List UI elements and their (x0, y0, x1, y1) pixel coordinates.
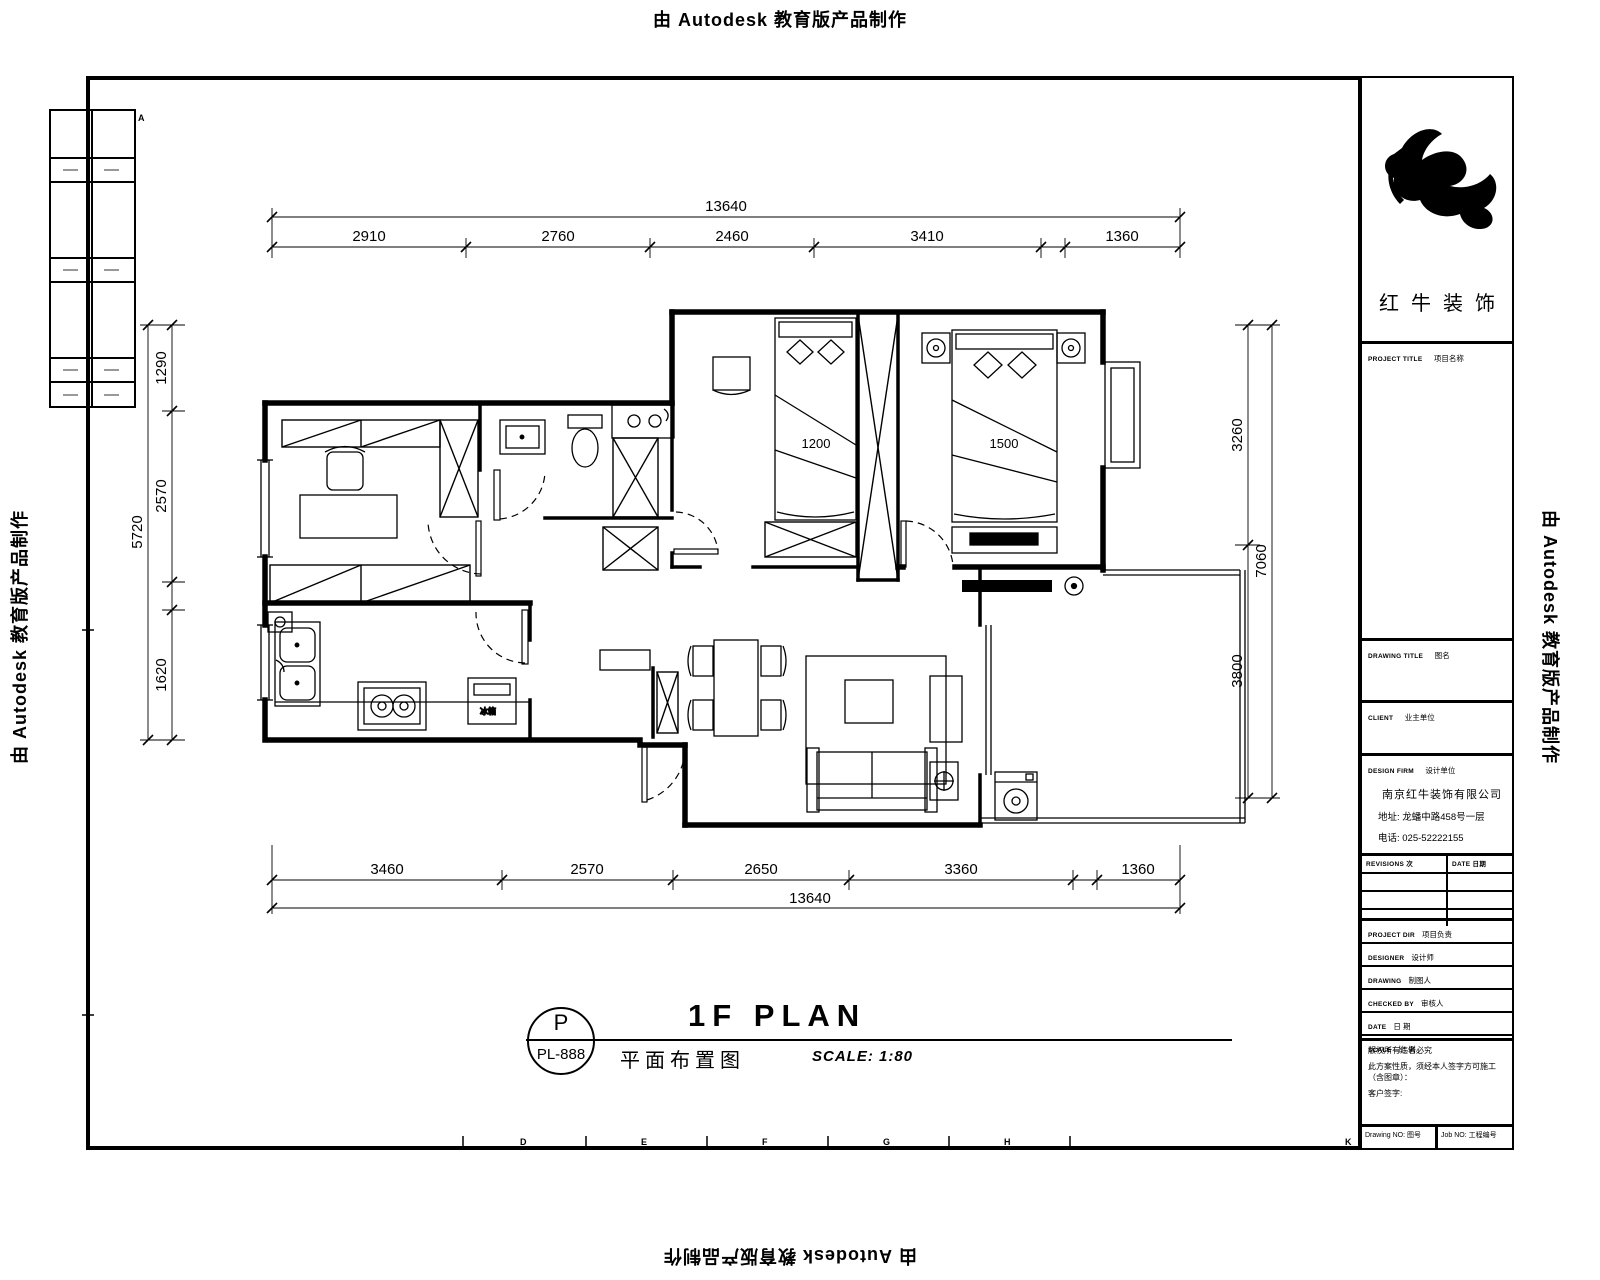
bedroom2-tv-cabinet (952, 527, 1057, 553)
bed2-size-label: 1500 (990, 436, 1019, 451)
bedroom1-side-table (713, 357, 750, 395)
plan-scale: SCALE: 1:80 (812, 1048, 913, 1065)
fridge (468, 678, 516, 724)
client-signature-label: 客户签字: (1368, 1089, 1506, 1099)
brand-name: 红牛装饰 (1362, 287, 1512, 316)
kitchen-door-leaf (522, 610, 528, 664)
coffee-table (845, 680, 893, 723)
notes-section: 版权所有违者必究 此方案性质，须经本人签字方可施工（含图章）： 客户签字: (1362, 1038, 1512, 1124)
project-title-section: PROJECT TITLE 项目名称 (1362, 341, 1512, 638)
svg-text:2460: 2460 (715, 228, 748, 245)
svg-text:F: F (762, 1137, 768, 1147)
svg-text:G: G (883, 1137, 890, 1147)
nightstand-left (922, 333, 950, 363)
svg-text:E: E (641, 1137, 647, 1147)
design-firm-section: DESIGN FIRM 设计单位 南京红牛装饰有限公司 地址: 龙蟠中路458号… (1362, 753, 1512, 853)
bed1-size-label: 1200 (802, 436, 831, 451)
drawing-no: Drawing NO: 图号 (1362, 1127, 1438, 1148)
client-section: CLIENT 业主单位 (1362, 700, 1512, 753)
dining-table (714, 640, 758, 736)
svg-text:13640: 13640 (789, 890, 831, 907)
firm-name: 南京红牛装饰有限公司 (1382, 786, 1506, 802)
study-wardrobe (440, 420, 478, 517)
floor-lamp (930, 762, 958, 800)
study-top-closet (282, 420, 440, 447)
svg-text:3410: 3410 (910, 228, 943, 245)
logo-section: 红牛装饰 (1362, 78, 1512, 341)
bay-window (1105, 362, 1140, 468)
bubble-letter: P (529, 1009, 593, 1037)
checked-by-row: CHECKED BY审核人 (1362, 990, 1512, 1013)
svg-text:2570: 2570 (570, 861, 603, 878)
plan-subtitle: 平面布置图 (620, 1044, 745, 1073)
interior-walls (480, 315, 980, 825)
svg-text:5720: 5720 (129, 515, 146, 548)
project-dir-row: PROJECT DIR项目负责 (1362, 921, 1512, 944)
nightstand-right (1057, 333, 1085, 363)
svg-text:13640: 13640 (705, 198, 747, 215)
closets (270, 315, 898, 733)
bathroom-door-leaf (494, 470, 500, 520)
svg-text:3460: 3460 (370, 861, 403, 878)
svg-text:3360: 3360 (944, 861, 977, 878)
svg-text:D: D (520, 1137, 527, 1147)
bed-1200 (775, 318, 856, 520)
fold-strip-table (50, 110, 135, 407)
svg-text:1360: 1360 (1121, 861, 1154, 878)
balcony-glazing (980, 570, 1245, 823)
plan-title-rule (526, 1039, 1232, 1041)
bubble-code: PL-888 (529, 1045, 593, 1065)
number-section: Drawing NO: 图号 Job NO: 工程编号 (1362, 1124, 1512, 1148)
sheet-border (82, 78, 1512, 1148)
svg-text:2910: 2910 (352, 228, 385, 245)
svg-text:2570: 2570 (153, 479, 170, 512)
job-no: Job NO: 工程编号 (1438, 1127, 1512, 1148)
revisions-section: REVISIONS 次 DATE 日期 (1362, 853, 1512, 918)
entry-door-leaf (642, 747, 647, 802)
svg-text:7060: 7060 (1253, 544, 1270, 577)
svg-text:K: K (1345, 1137, 1352, 1147)
firm-address: 地址: 龙蟠中路458号一层 (1378, 809, 1506, 823)
study-south-closet (270, 565, 470, 603)
bed-1500 (952, 330, 1057, 522)
hall-cabinet (603, 527, 658, 570)
shoe-cabinet (657, 672, 678, 733)
svg-text:H: H (1004, 1137, 1011, 1147)
svg-text:1360: 1360 (1105, 228, 1138, 245)
dimension-labels: 13640 2910 2760 2460 3410 1360 3460 2570… (129, 198, 1270, 907)
svg-text:3260: 3260 (1229, 418, 1246, 451)
study-door-leaf (476, 521, 481, 576)
washing-machine (995, 772, 1037, 820)
shower-unit (613, 438, 658, 517)
kitchen-sink (275, 622, 320, 706)
laundry-counter (612, 405, 674, 438)
study-desk (300, 495, 397, 538)
date-row: DATE日 期 (1362, 1013, 1512, 1036)
bathroom-vanity (500, 420, 545, 454)
signature-rows: PROJECT DIR项目负责 DESIGNER设计师 DRAWING制图人 C… (1362, 918, 1512, 1038)
drawing-row: DRAWING制图人 (1362, 967, 1512, 990)
drawing-sheet: 由 Autodesk 教育版产品制作 由 Autodesk 教育版产品制作 由 … (0, 0, 1600, 1280)
sofa (807, 748, 937, 812)
fridge-label: 冰箱 (480, 706, 496, 716)
plan-reference-bubble: P PL-888 (527, 1007, 595, 1075)
svg-text:1620: 1620 (153, 658, 170, 691)
plan-title: 1F PLAN (688, 998, 866, 1034)
title-block: 红牛装饰 PROJECT TITLE 项目名称 DRAWING TITLE 图名… (1358, 78, 1512, 1148)
windows (257, 362, 1245, 823)
svg-text:3800: 3800 (1229, 654, 1246, 687)
red-bull-logo-icon (1362, 78, 1512, 278)
svg-text:2650: 2650 (744, 861, 777, 878)
toilet (568, 415, 602, 467)
dim-bottom (267, 845, 1185, 914)
svg-text:2760: 2760 (541, 228, 574, 245)
stove (358, 682, 426, 730)
dining-chairs (688, 646, 786, 730)
firm-phone: 电话: 025-52222155 (1378, 830, 1506, 844)
hall-wardrobe (858, 315, 898, 580)
entry-cabinet (600, 650, 650, 670)
bedroom1-cabinet (765, 522, 856, 557)
bedroom1-door-leaf (674, 549, 718, 554)
bedroom2-door-leaf (901, 521, 906, 567)
svg-text:1290: 1290 (153, 351, 170, 384)
grid-letter-a: A (138, 113, 145, 123)
designer-row: DESIGNER设计师 (1362, 944, 1512, 967)
study-chair (325, 447, 365, 491)
drawing-title-section: DRAWING TITLE 图名 (1362, 638, 1512, 700)
